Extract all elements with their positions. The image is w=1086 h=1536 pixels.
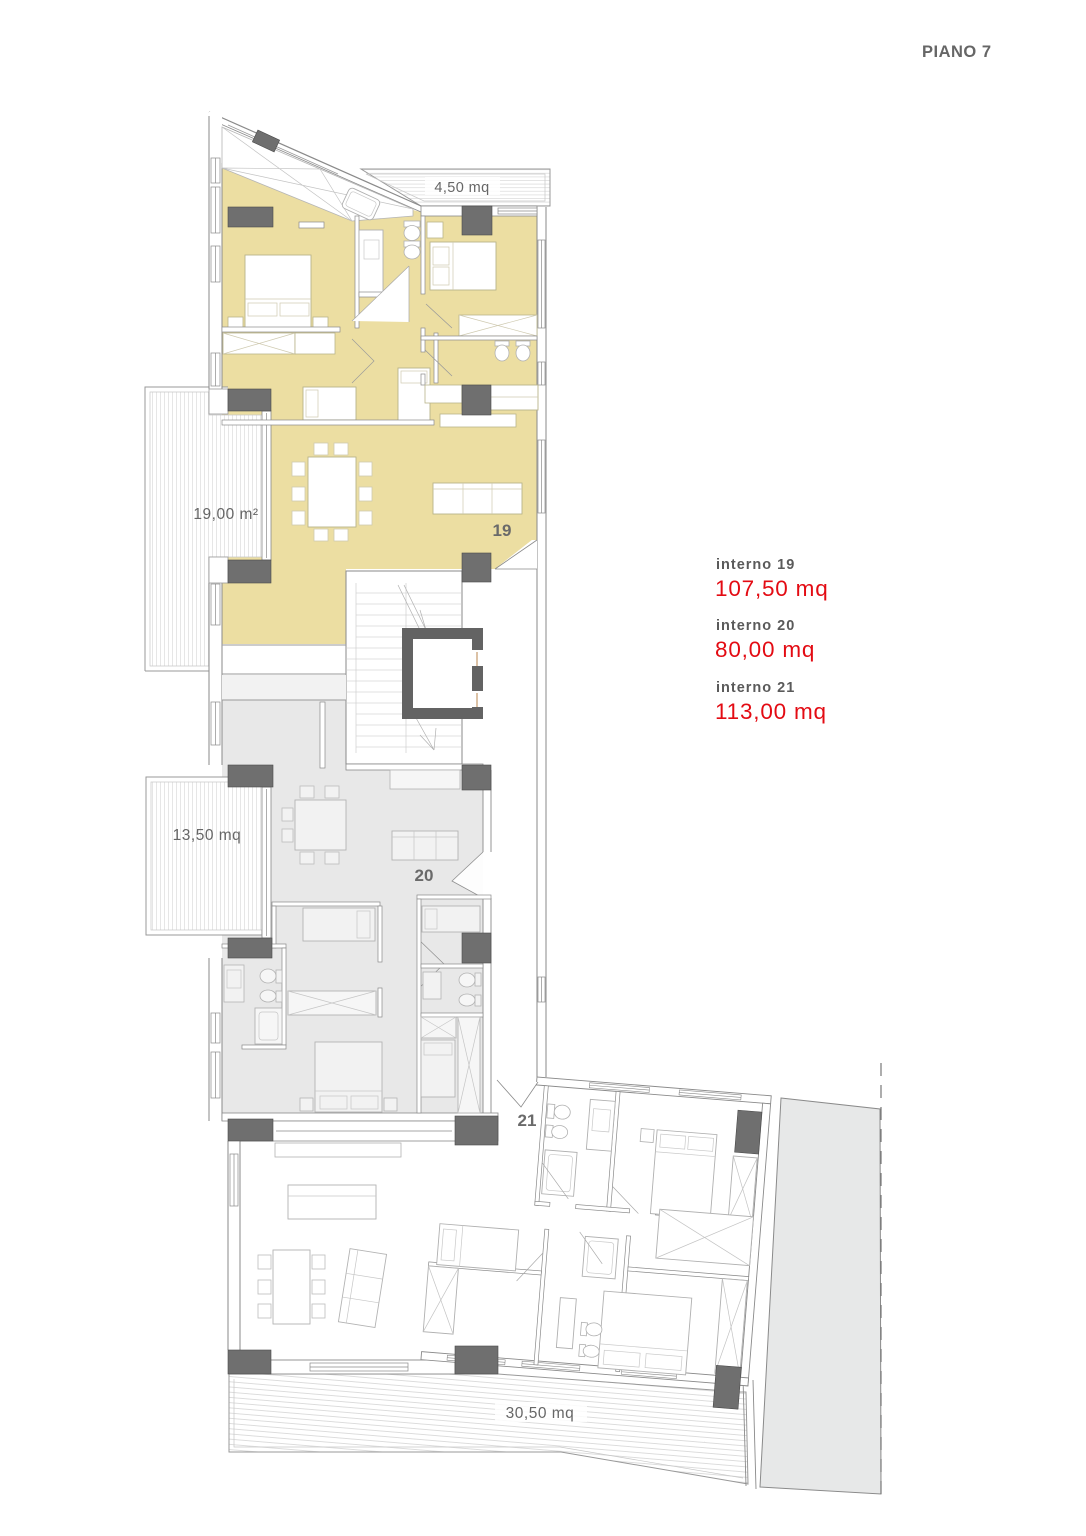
svg-text:13,50 mq: 13,50 mq	[173, 827, 242, 844]
svg-text:19,00 m²: 19,00 m²	[193, 506, 258, 523]
svg-text:80,00 mq: 80,00 mq	[715, 637, 815, 662]
svg-text:113,00 mq: 113,00 mq	[715, 699, 827, 724]
svg-text:21: 21	[518, 1111, 537, 1130]
svg-text:4,50 mq: 4,50 mq	[434, 180, 489, 196]
svg-text:20: 20	[415, 866, 434, 885]
svg-text:30,50 mq: 30,50 mq	[506, 1405, 575, 1422]
svg-text:107,50 mq: 107,50 mq	[715, 576, 829, 601]
svg-text:interno 20: interno 20	[716, 618, 795, 634]
svg-text:PIANO 7: PIANO 7	[922, 43, 992, 61]
svg-text:19: 19	[493, 521, 512, 540]
svg-text:interno 21: interno 21	[716, 680, 795, 696]
svg-text:interno 19: interno 19	[716, 557, 795, 573]
